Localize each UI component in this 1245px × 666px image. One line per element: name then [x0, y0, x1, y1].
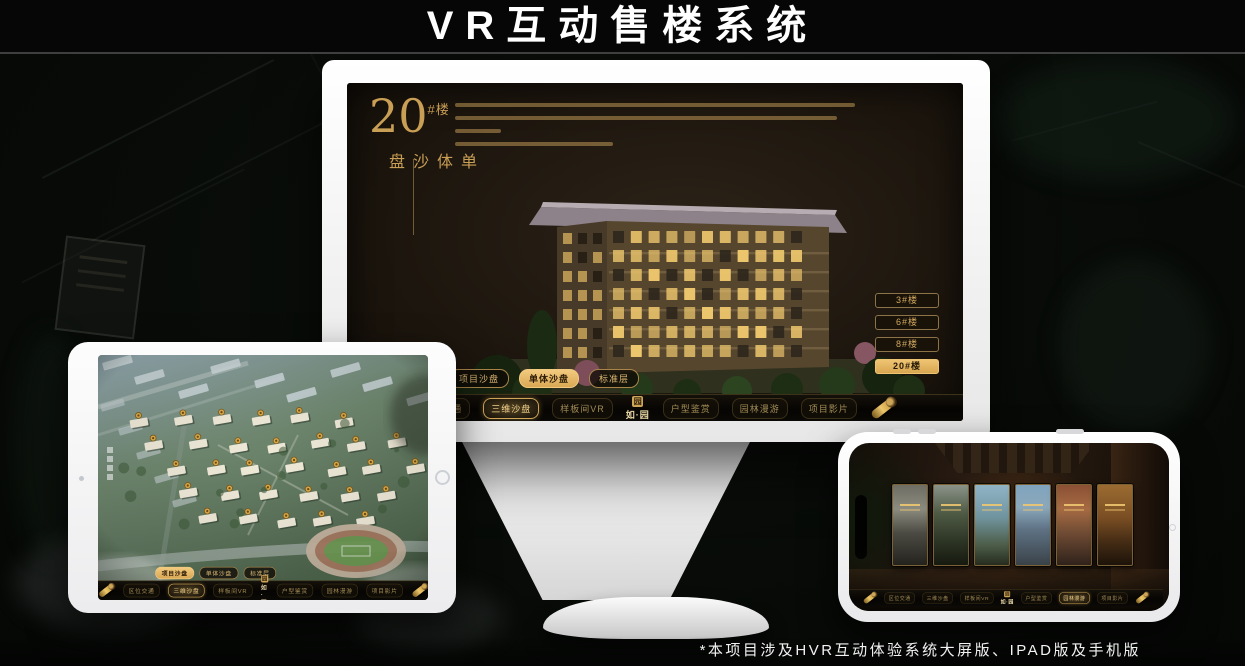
brand-logo[interactable]: 园 如·园 — [626, 396, 650, 421]
title-bar: VR互动售楼系统 — [0, 0, 1245, 54]
nav-item-unit-plans[interactable]: 户型鉴赏 — [1021, 592, 1052, 604]
nav-item-3d-sandbox[interactable]: 三维沙盘 — [168, 584, 204, 598]
tab-single-sandbox[interactable]: 单体沙盘 — [199, 567, 238, 579]
phone-device: 区位交通 三维沙盘 样板间VR 园 如·园 户型鉴赏 园林漫游 项目影片 — [838, 432, 1180, 622]
nav-item-project-film[interactable]: 项目影片 — [366, 584, 402, 598]
scroll-handle-icon[interactable] — [98, 583, 115, 598]
scroll-handle-icon[interactable] — [870, 396, 896, 419]
phone-screen: 区位交通 三维沙盘 样板间VR 园 如·园 户型鉴赏 园林漫游 项目影片 — [849, 443, 1169, 611]
nav-item-showroom-vr[interactable]: 样板间VR — [960, 592, 993, 604]
brand-logo-text: 如·园 — [626, 408, 650, 421]
footnote: *本项目涉及HVR互动体验系统大屏版、IPAD版及手机版 — [700, 639, 1141, 660]
phone-bottom-navbar: 区位交通 三维沙盘 样板间VR 园 如·园 户型鉴赏 园林漫游 项目影片 — [849, 590, 1163, 607]
interior-pergola — [935, 443, 1095, 473]
camera-icon — [79, 476, 84, 481]
nav-item-location[interactable]: 区位交通 — [123, 584, 159, 598]
floor-button-20[interactable]: 20#楼 — [875, 359, 939, 374]
home-button[interactable] — [435, 470, 450, 485]
floor-selector: 3#楼 6#楼 8#楼 20#楼 — [875, 293, 939, 374]
camera-icon — [1169, 524, 1176, 531]
scene-card[interactable] — [892, 484, 928, 566]
scene-card[interactable] — [1056, 484, 1092, 566]
scene-card[interactable] — [1097, 484, 1133, 566]
brand-logo[interactable]: 园 如·园 — [1001, 591, 1014, 605]
building-number: 20 — [369, 89, 428, 143]
scene-card[interactable] — [974, 484, 1010, 566]
tablet-bottom-navbar: 区位交通 三维沙盘 样板间VR 园 如·园 户型鉴赏 园林漫游 项目影片 — [98, 581, 428, 601]
nav-item-showroom-vr[interactable]: 样板间VR — [213, 584, 252, 598]
scroll-handle-icon[interactable] — [863, 592, 877, 605]
nav-item-unit-plans[interactable]: 户型鉴赏 — [663, 398, 719, 419]
page-title: VR互动售楼系统 — [0, 0, 1245, 52]
poster: VR互动售楼系统 20#楼 单体沙盘 — [0, 0, 1245, 666]
brand-logo[interactable]: 园 如·园 — [261, 575, 268, 600]
nav-item-unit-plans[interactable]: 户型鉴赏 — [277, 584, 313, 598]
tab-project-sandbox[interactable]: 项目沙盘 — [155, 567, 194, 579]
scroll-handle-icon[interactable] — [411, 583, 428, 598]
tab-single-sandbox[interactable]: 单体沙盘 — [519, 369, 579, 388]
nav-item-garden-roam[interactable]: 园林漫游 — [322, 584, 358, 598]
section-headline: 20#楼 单体沙盘 — [369, 93, 450, 139]
nav-item-3d-sandbox[interactable]: 三维沙盘 — [483, 398, 539, 419]
power-button — [1056, 429, 1084, 434]
scroll-handle-icon[interactable] — [1135, 592, 1149, 605]
scene-card[interactable] — [933, 484, 969, 566]
seal-icon: 园 — [632, 396, 643, 407]
floor-button-3[interactable]: 3#楼 — [875, 293, 939, 308]
tab-standard-floor[interactable]: 标准层 — [589, 369, 639, 388]
nav-item-showroom-vr[interactable]: 样板间VR — [552, 398, 613, 419]
nav-item-project-film[interactable]: 项目影片 — [1097, 592, 1128, 604]
phone-ui-overlay: 区位交通 三维沙盘 样板间VR 园 如·园 户型鉴赏 园林漫游 项目影片 — [849, 590, 1163, 607]
nav-item-garden-roam[interactable]: 园林漫游 — [1059, 592, 1090, 604]
floor-button-8[interactable]: 8#楼 — [875, 337, 939, 352]
seal-icon: 园 — [1004, 591, 1010, 597]
background-plaque — [55, 235, 146, 339]
tablet-ui-overlay: 项目沙盘 单体沙盘 标准层 区位交通 三维沙盘 样板间VR 园 如·园 户型鉴赏… — [98, 567, 428, 600]
notch — [855, 495, 867, 559]
building-number-suffix: #楼 — [428, 102, 450, 117]
scene-card-gallery — [892, 484, 1133, 566]
volume-button — [918, 429, 936, 434]
floor-button-6[interactable]: 6#楼 — [875, 315, 939, 330]
tablet-device: 项目沙盘 单体沙盘 标准层 区位交通 三维沙盘 样板间VR 园 如·园 户型鉴赏… — [68, 342, 456, 613]
aerial-masterplan-render — [98, 355, 428, 600]
nav-item-3d-sandbox[interactable]: 三维沙盘 — [922, 592, 953, 604]
tab-project-sandbox[interactable]: 项目沙盘 — [449, 369, 509, 388]
tablet-mode-tabs: 项目沙盘 单体沙盘 标准层 — [155, 567, 428, 579]
monitor-mode-tabs: 项目沙盘 单体沙盘 标准层 — [449, 369, 639, 388]
seal-icon: 园 — [261, 575, 268, 582]
tablet-screen: 项目沙盘 单体沙盘 标准层 区位交通 三维沙盘 样板间VR 园 如·园 户型鉴赏… — [98, 355, 428, 600]
monitor-stand-base — [543, 597, 769, 639]
monitor-stand-neck — [455, 440, 757, 600]
decor-vertical-line — [413, 159, 414, 235]
brand-logo-text: 如·园 — [261, 583, 268, 600]
brand-logo-text: 如·园 — [1001, 598, 1014, 605]
scene-card[interactable] — [1015, 484, 1051, 566]
nav-item-location[interactable]: 区位交通 — [884, 592, 915, 604]
nav-item-project-film[interactable]: 项目影片 — [801, 398, 857, 419]
volume-button — [893, 429, 911, 434]
nav-item-garden-roam[interactable]: 园林漫游 — [732, 398, 788, 419]
